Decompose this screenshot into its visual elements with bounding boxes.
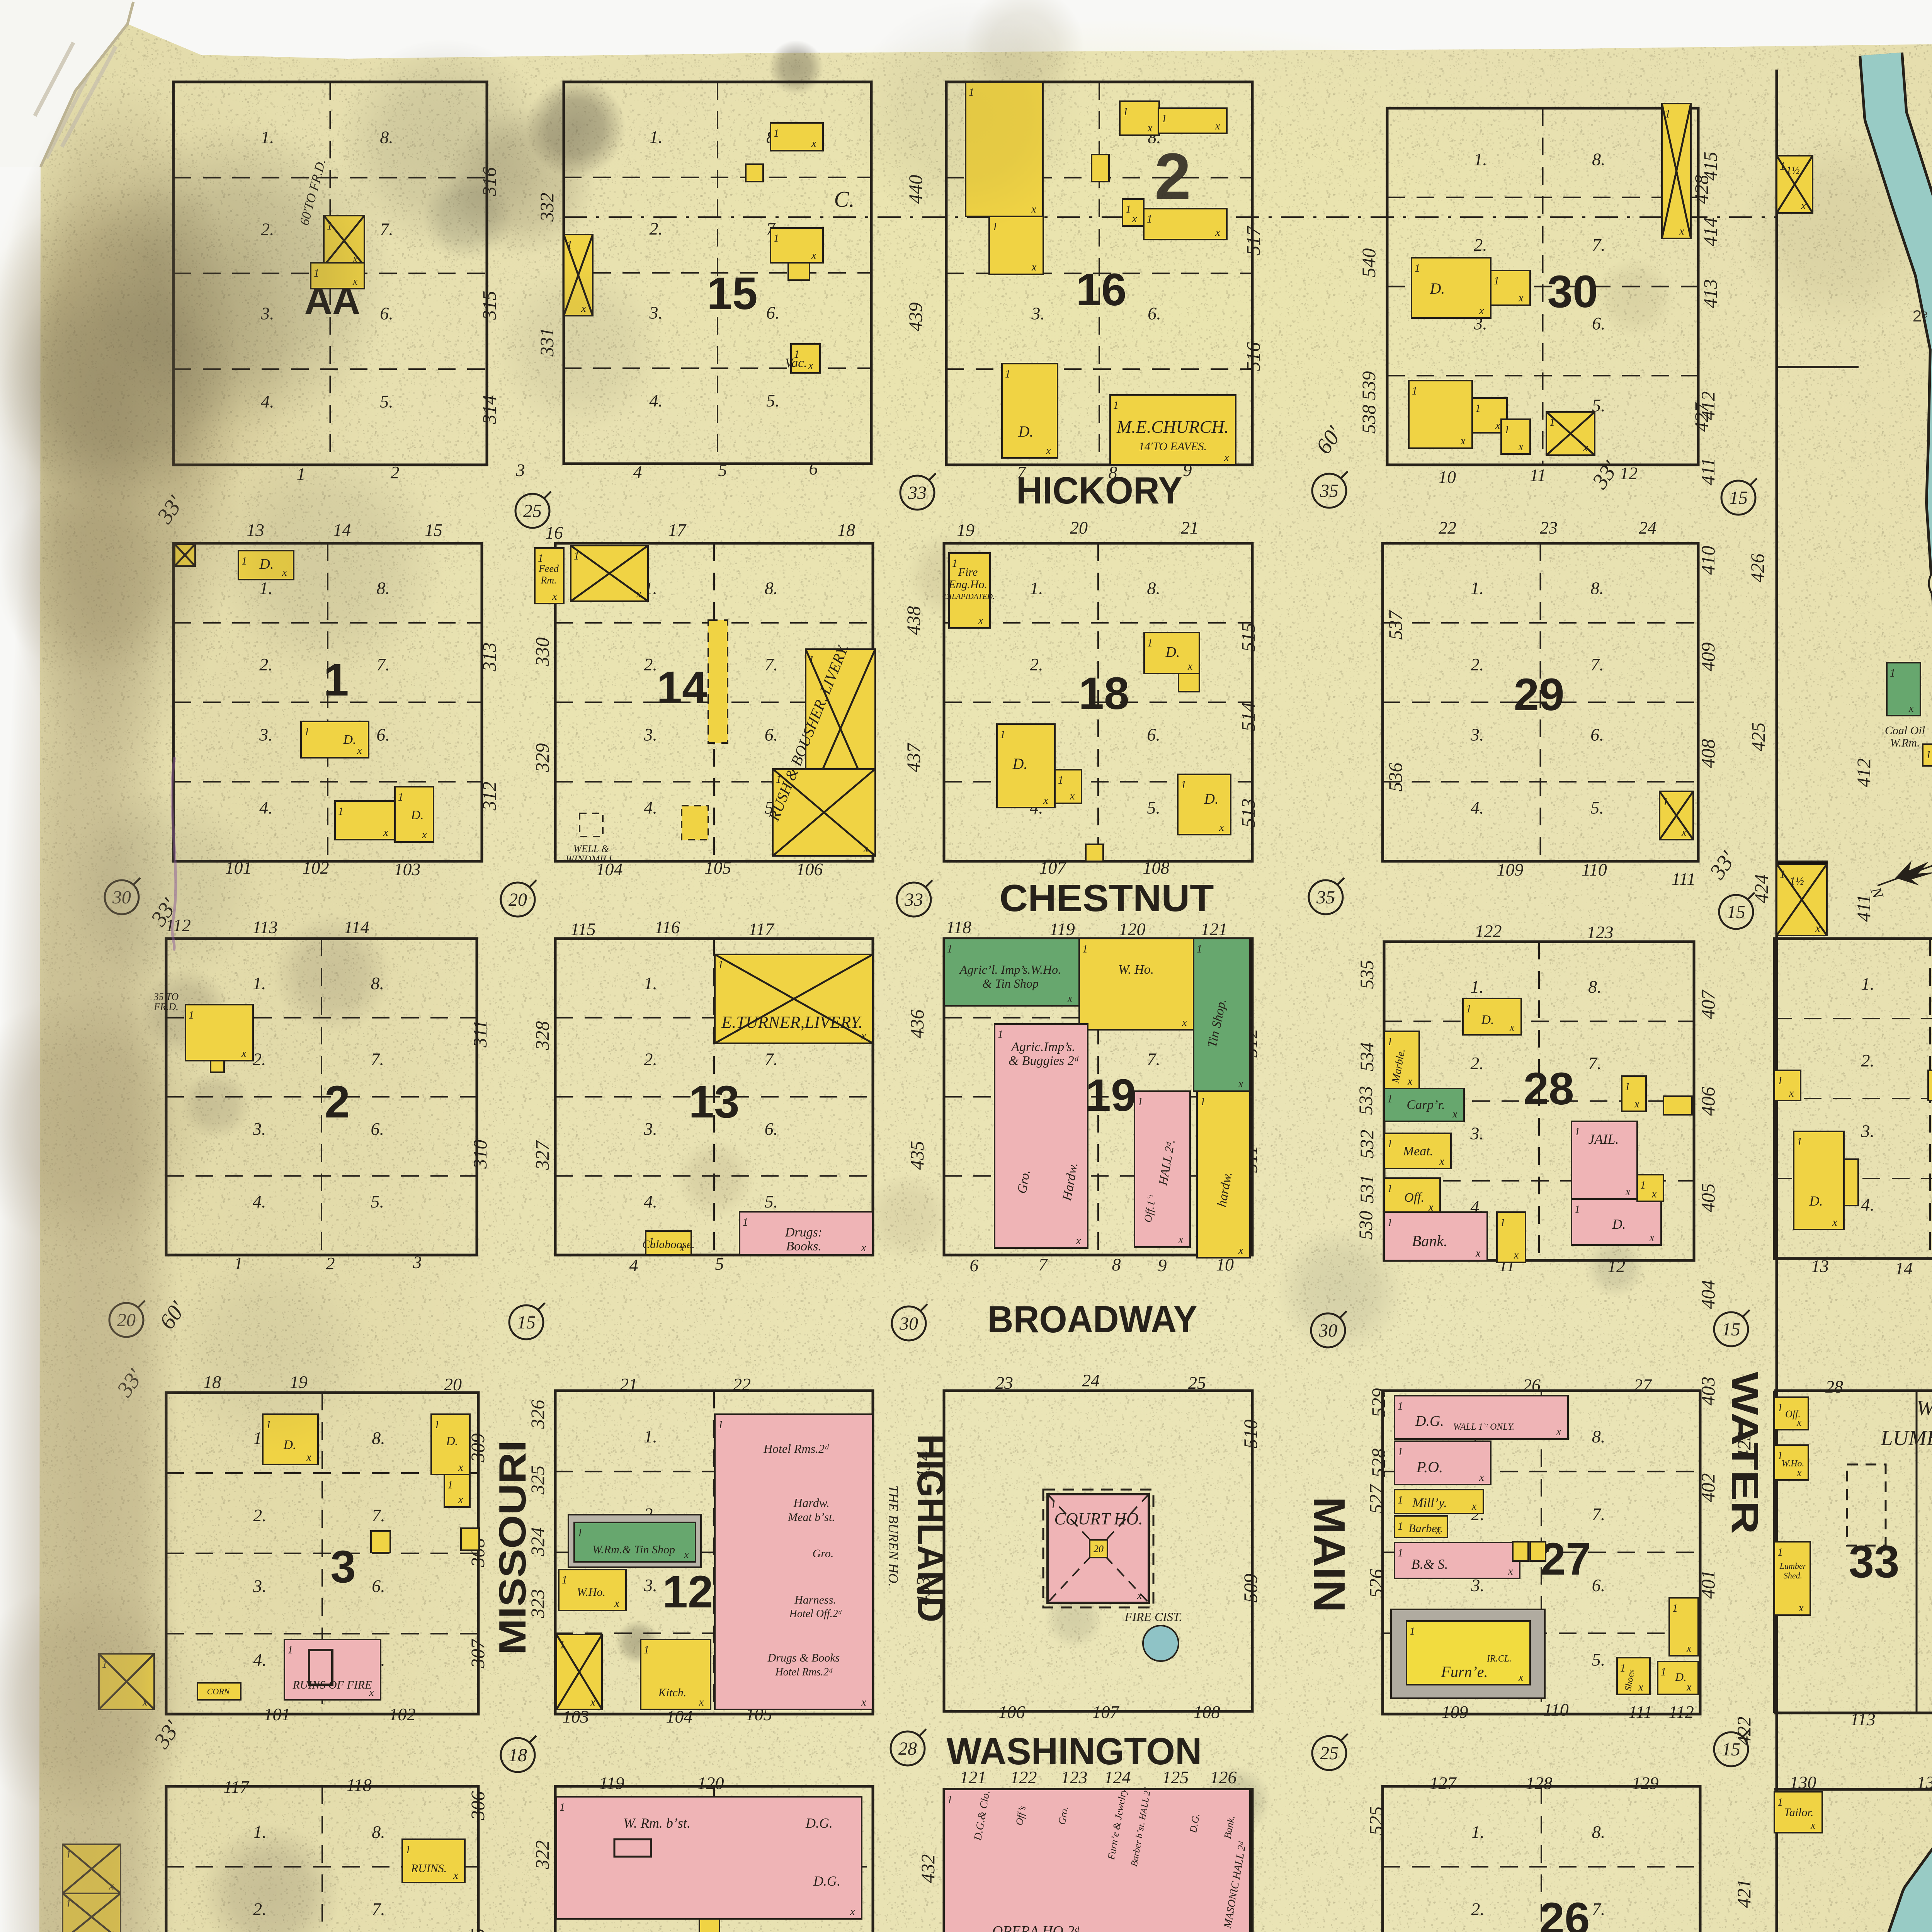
svg-text:Hardw.: Hardw. (793, 1496, 829, 1510)
svg-text:322: 322 (531, 1840, 553, 1870)
svg-text:x: x (1046, 445, 1051, 457)
svg-text:x: x (453, 1869, 458, 1881)
svg-text:x: x (614, 1597, 619, 1609)
svg-text:26: 26 (1539, 1893, 1590, 1932)
svg-text:1: 1 (1005, 368, 1010, 380)
svg-text:Meat bʼst.: Meat bʼst. (787, 1511, 835, 1524)
svg-text:x: x (1634, 1098, 1639, 1110)
svg-text:Harness.: Harness. (794, 1594, 836, 1606)
svg-text:314: 314 (478, 395, 500, 425)
svg-text:117: 117 (223, 1777, 250, 1797)
svg-text:1.: 1. (1861, 974, 1875, 993)
svg-text:x: x (1815, 922, 1820, 934)
svg-text:x: x (357, 745, 362, 757)
svg-text:x: x (1182, 1017, 1187, 1029)
svg-text:20: 20 (1094, 1543, 1104, 1554)
svg-text:102: 102 (303, 858, 329, 878)
svg-text:IR.CL.: IR.CL. (1486, 1654, 1512, 1664)
svg-text:25: 25 (1188, 1373, 1206, 1393)
svg-text:4.: 4. (253, 1650, 267, 1670)
svg-text:1: 1 (1387, 1217, 1393, 1229)
svg-text:CORN: CORN (207, 1687, 230, 1696)
svg-text:2ᵉ COPY DEL TO MAP DIV.: 2ᵉ COPY DEL TO MAP DIV. (1913, 307, 1932, 325)
svg-text:1: 1 (1410, 1626, 1415, 1638)
svg-text:1: 1 (1640, 1179, 1646, 1191)
svg-text:x: x (1031, 261, 1037, 273)
svg-text:33: 33 (904, 889, 923, 910)
svg-text:1: 1 (1162, 113, 1167, 125)
svg-text:3.: 3. (643, 1575, 657, 1595)
svg-text:529: 529 (1367, 1388, 1389, 1417)
svg-text:D.: D. (1204, 791, 1219, 807)
svg-text:422: 422 (1733, 1717, 1755, 1746)
svg-text:12: 12 (1607, 1256, 1625, 1276)
svg-text:7.: 7. (1588, 1053, 1602, 1073)
svg-text:D.: D. (410, 808, 423, 822)
svg-text:28: 28 (898, 1738, 917, 1759)
svg-text:5.: 5. (765, 1192, 778, 1211)
svg-text:x: x (1518, 1672, 1524, 1684)
svg-text:14: 14 (656, 662, 707, 713)
svg-text:1.: 1. (644, 973, 657, 993)
svg-text:3.: 3. (253, 1576, 267, 1596)
svg-text:35: 35 (1316, 887, 1335, 908)
svg-text:12: 12 (662, 1566, 713, 1617)
svg-text:6.: 6. (1147, 724, 1160, 744)
svg-text:102: 102 (389, 1704, 416, 1724)
svg-text:1: 1 (952, 558, 957, 570)
svg-text:D.G.: D.G. (813, 1873, 840, 1889)
svg-text:6.: 6. (766, 303, 780, 323)
svg-text:401: 401 (1697, 1570, 1719, 1599)
svg-text:JAIL.: JAIL. (1588, 1131, 1619, 1147)
svg-text:405: 405 (1697, 1184, 1719, 1213)
svg-text:x: x (458, 1461, 463, 1473)
svg-text:4.: 4. (253, 1192, 266, 1211)
svg-text:126: 126 (1210, 1767, 1237, 1787)
svg-text:106: 106 (796, 859, 823, 879)
svg-text:1: 1 (1661, 1666, 1666, 1678)
svg-text:Drugs & Books: Drugs & Books (767, 1651, 840, 1664)
svg-text:15: 15 (1722, 1319, 1740, 1340)
svg-text:x: x (1518, 292, 1524, 304)
svg-text:D.G.: D.G. (1415, 1413, 1444, 1429)
svg-text:1: 1 (577, 1527, 583, 1539)
svg-text:33: 33 (908, 483, 927, 503)
svg-text:1: 1 (1123, 106, 1128, 118)
svg-text:15: 15 (1727, 902, 1745, 922)
svg-text:D.: D. (1481, 1013, 1494, 1027)
svg-text:x: x (684, 1549, 689, 1561)
svg-text:x: x (850, 1906, 855, 1918)
svg-text:1: 1 (287, 1644, 293, 1656)
svg-text:x: x (1224, 452, 1229, 464)
svg-text:x: x (978, 615, 983, 627)
svg-text:9: 9 (1158, 1255, 1167, 1275)
svg-text:1: 1 (1398, 1520, 1403, 1532)
svg-text:D.: D. (446, 1434, 458, 1448)
svg-text:8.: 8. (1592, 1427, 1605, 1446)
svg-text:3.: 3. (1470, 1124, 1484, 1143)
svg-text:1: 1 (1665, 108, 1670, 120)
svg-text:121: 121 (960, 1767, 986, 1787)
svg-text:6.: 6. (372, 1576, 385, 1596)
svg-text:Vac.: Vac. (785, 356, 807, 370)
svg-text:535: 535 (1356, 960, 1378, 989)
svg-text:123: 123 (1061, 1767, 1088, 1787)
svg-text:1: 1 (1890, 667, 1895, 679)
svg-text:114: 114 (344, 917, 369, 937)
svg-text:Kitch.: Kitch. (658, 1686, 687, 1699)
svg-text:7: 7 (1017, 463, 1027, 482)
svg-text:1: 1 (947, 943, 952, 955)
svg-text:23: 23 (1540, 518, 1558, 537)
svg-text:3.: 3. (252, 1119, 266, 1139)
svg-text:7.: 7. (1592, 235, 1605, 255)
svg-text:514: 514 (1237, 702, 1259, 731)
svg-text:411: 411 (1697, 457, 1719, 485)
svg-text:13: 13 (689, 1077, 739, 1128)
svg-text:20: 20 (444, 1374, 462, 1394)
svg-text:B.& S.: B.& S. (1412, 1556, 1448, 1572)
svg-text:Mill’y.: Mill’y. (1412, 1496, 1447, 1510)
svg-text:1: 1 (1777, 1402, 1783, 1414)
svg-text:20: 20 (1070, 518, 1088, 537)
svg-text:18: 18 (837, 520, 855, 540)
svg-text:8.: 8. (371, 973, 384, 993)
svg-text:423: 423 (1733, 1431, 1755, 1460)
svg-text:2.: 2. (650, 219, 663, 238)
svg-text:1: 1 (644, 1644, 649, 1656)
svg-text:7.: 7. (1592, 1899, 1605, 1919)
svg-text:533: 533 (1355, 1086, 1376, 1115)
svg-text:3.: 3. (1470, 724, 1484, 744)
svg-text:404: 404 (1697, 1280, 1719, 1309)
svg-text:1½: 1½ (1786, 165, 1800, 177)
svg-text:26: 26 (1523, 1375, 1541, 1395)
svg-text:537: 537 (1384, 610, 1406, 640)
svg-text:407: 407 (1697, 990, 1719, 1019)
svg-text:111: 111 (1628, 1702, 1652, 1722)
svg-text:1.: 1. (650, 127, 663, 147)
svg-text:HICKORY: HICKORY (1016, 469, 1182, 512)
svg-text:x: x (1832, 1216, 1837, 1228)
svg-text:434: 434 (912, 1451, 934, 1480)
svg-text:307: 307 (467, 1639, 488, 1669)
svg-text:x: x (1686, 1643, 1692, 1655)
svg-text:W. Ho.: W. Ho. (1118, 963, 1154, 977)
svg-text:W.Rm.: W.Rm. (1890, 736, 1920, 749)
svg-text:306: 306 (467, 1791, 488, 1821)
svg-text:D.: D. (1430, 280, 1445, 297)
svg-text:130: 130 (1790, 1772, 1816, 1792)
svg-text:20: 20 (509, 889, 527, 910)
svg-text:13: 13 (1811, 1256, 1829, 1276)
svg-text:7.: 7. (1592, 1504, 1605, 1524)
svg-text:1.: 1. (253, 973, 266, 993)
svg-text:FIRE CIST.: FIRE CIST. (1124, 1610, 1182, 1624)
svg-text:24: 24 (1082, 1371, 1100, 1390)
svg-text:6.: 6. (1148, 303, 1161, 323)
svg-text:x: x (306, 1451, 311, 1463)
svg-text:5: 5 (715, 1254, 724, 1274)
svg-text:Barber.: Barber. (1408, 1522, 1443, 1535)
svg-text:6.: 6. (371, 1119, 384, 1139)
svg-text:6.: 6. (1592, 1575, 1605, 1595)
svg-text:7.: 7. (765, 655, 778, 674)
svg-text:536: 536 (1384, 763, 1406, 792)
svg-text:7.: 7. (1590, 655, 1604, 674)
svg-text:11: 11 (1530, 465, 1546, 485)
svg-text:8.: 8. (765, 578, 778, 598)
svg-text:1: 1 (447, 1479, 453, 1491)
svg-text:1: 1 (774, 233, 779, 245)
svg-text:1: 1 (1475, 403, 1481, 415)
svg-text:D.: D. (1612, 1216, 1626, 1232)
svg-text:W. F. SHAW,: W. F. SHAW, (1917, 1396, 1932, 1420)
svg-text:1: 1 (1926, 749, 1931, 761)
svg-text:315: 315 (478, 291, 500, 320)
svg-text:x: x (1509, 1022, 1515, 1034)
svg-text:D.: D. (343, 733, 356, 747)
svg-text:1: 1 (1549, 417, 1555, 429)
svg-text:2.: 2. (253, 1899, 267, 1919)
svg-text:119: 119 (1049, 919, 1075, 939)
svg-text:4.: 4. (1861, 1195, 1875, 1214)
svg-text:1.: 1. (1471, 578, 1484, 598)
svg-text:125: 125 (1162, 1767, 1189, 1787)
svg-text:7: 7 (1039, 1255, 1048, 1274)
svg-text:510: 510 (1240, 1420, 1261, 1449)
svg-text:W. Rm. bʼst.: W. Rm. bʼst. (623, 1815, 690, 1831)
svg-text:x: x (383, 827, 388, 838)
svg-text:4.: 4. (650, 391, 663, 410)
svg-text:1: 1 (1500, 1217, 1505, 1229)
svg-text:28: 28 (1523, 1063, 1574, 1114)
svg-text:7.: 7. (371, 1049, 384, 1069)
svg-text:15: 15 (517, 1312, 536, 1333)
svg-text:532: 532 (1356, 1130, 1378, 1159)
svg-text:23: 23 (995, 1373, 1013, 1393)
svg-text:1: 1 (1412, 385, 1417, 397)
svg-text:421: 421 (1733, 1879, 1755, 1908)
svg-text:Calaboose.: Calaboose. (642, 1238, 695, 1251)
svg-text:120: 120 (1119, 919, 1146, 939)
svg-text:108: 108 (1143, 858, 1170, 878)
svg-text:Drugs:: Drugs: (785, 1225, 822, 1240)
svg-text:Carp’r.: Carp’r. (1406, 1098, 1445, 1112)
svg-text:425: 425 (1747, 723, 1769, 752)
svg-text:7.: 7. (372, 1899, 385, 1919)
svg-text:128: 128 (1526, 1773, 1553, 1793)
svg-text:107: 107 (1092, 1702, 1120, 1722)
svg-text:x: x (1439, 1155, 1444, 1167)
svg-text:x: x (1495, 420, 1500, 432)
svg-text:3.: 3. (259, 724, 273, 744)
svg-text:2.: 2. (1861, 1051, 1875, 1070)
svg-text:THE BUREN HO.: THE BUREN HO. (886, 1485, 901, 1587)
svg-text:14: 14 (1895, 1259, 1913, 1278)
svg-text:330: 330 (531, 638, 553, 667)
svg-text:1: 1 (1777, 1075, 1783, 1087)
svg-text:531: 531 (1356, 1175, 1378, 1204)
svg-text:x: x (241, 1048, 247, 1060)
svg-text:Furn’e.: Furn’e. (1440, 1663, 1488, 1680)
svg-text:Bank.: Bank. (1412, 1232, 1447, 1250)
svg-text:1: 1 (1466, 1003, 1471, 1015)
svg-text:540: 540 (1358, 248, 1379, 277)
svg-text:2.: 2. (1471, 1899, 1485, 1919)
svg-text:1: 1 (1398, 1400, 1403, 1412)
svg-text:x: x (1649, 1232, 1655, 1244)
svg-text:129: 129 (1632, 1773, 1659, 1793)
svg-text:21: 21 (620, 1374, 638, 1394)
svg-text:1: 1 (1387, 1138, 1393, 1150)
svg-text:1: 1 (560, 1801, 565, 1813)
svg-text:1: 1 (1398, 1446, 1403, 1458)
svg-text:324: 324 (527, 1527, 548, 1557)
svg-text:526: 526 (1365, 1569, 1387, 1598)
svg-text:x: x (1679, 225, 1684, 237)
svg-text:1.: 1. (253, 1822, 267, 1842)
svg-text:D.: D. (1165, 644, 1180, 660)
svg-text:x: x (1452, 1108, 1458, 1120)
svg-text:Meat.: Meat. (1403, 1144, 1433, 1158)
svg-text:119: 119 (599, 1773, 624, 1793)
svg-text:311: 311 (469, 1020, 491, 1048)
svg-text:D.: D. (1012, 755, 1028, 772)
svg-text:1: 1 (774, 128, 779, 139)
svg-text:513: 513 (1237, 799, 1259, 828)
svg-text:25: 25 (523, 501, 542, 521)
svg-text:409: 409 (1697, 643, 1719, 672)
svg-text:408: 408 (1697, 739, 1719, 768)
svg-text:5.: 5. (1592, 1650, 1605, 1669)
svg-text:Off.: Off. (1404, 1190, 1424, 1205)
svg-text:x: x (1407, 1075, 1413, 1087)
svg-text:127: 127 (1430, 1773, 1457, 1793)
svg-text:D.G.: D.G. (805, 1815, 833, 1831)
svg-text:539: 539 (1358, 371, 1379, 400)
svg-text:8.: 8. (1147, 578, 1160, 598)
svg-text:x: x (811, 138, 816, 150)
svg-text:109: 109 (1442, 1702, 1468, 1722)
svg-text:5: 5 (718, 460, 727, 480)
svg-text:x: x (636, 588, 641, 600)
svg-text:x: x (1043, 794, 1048, 806)
svg-text:Feed: Feed (538, 563, 559, 574)
svg-text:7.: 7. (765, 1049, 778, 1069)
svg-text:107: 107 (1039, 858, 1067, 878)
svg-text:x: x (863, 843, 869, 855)
svg-text:x: x (1479, 1471, 1484, 1483)
svg-text:2.: 2. (253, 1505, 267, 1525)
svg-text:1: 1 (1000, 729, 1005, 741)
svg-text:433: 433 (912, 1577, 934, 1605)
svg-text:323: 323 (527, 1589, 548, 1619)
svg-text:x: x (1238, 1245, 1243, 1257)
svg-text:413: 413 (1699, 279, 1721, 308)
svg-text:1: 1 (1387, 1183, 1393, 1195)
svg-text:329: 329 (531, 743, 553, 773)
svg-text:Lumber: Lumber (1779, 1561, 1806, 1571)
svg-text:1: 1 (574, 550, 579, 562)
svg-text:1½: 1½ (1789, 875, 1804, 888)
svg-text:x: x (1518, 441, 1524, 453)
svg-text:x: x (1475, 1247, 1481, 1259)
svg-text:& Tin Shop: & Tin Shop (982, 976, 1039, 990)
svg-text:8.: 8. (1592, 150, 1605, 169)
svg-text:8.: 8. (372, 1822, 385, 1842)
svg-text:x: x (1798, 1602, 1804, 1614)
svg-text:x: x (699, 1696, 704, 1708)
svg-text:4.: 4. (1471, 798, 1484, 818)
svg-text:538: 538 (1358, 405, 1379, 434)
svg-text:x: x (1514, 1249, 1519, 1261)
svg-text:1.: 1. (1030, 578, 1043, 598)
svg-text:120: 120 (697, 1773, 724, 1793)
svg-text:Agric.Imp’s.: Agric.Imp’s. (1010, 1040, 1075, 1054)
svg-text:412: 412 (1853, 759, 1874, 787)
svg-text:3: 3 (413, 1252, 422, 1272)
svg-text:x: x (1638, 1681, 1643, 1693)
svg-text:24: 24 (1639, 518, 1656, 537)
svg-text:x: x (811, 250, 816, 262)
svg-text:2.: 2. (1471, 655, 1484, 674)
svg-text:x: x (1178, 1234, 1184, 1246)
svg-text:2.: 2. (1474, 235, 1487, 255)
svg-text:110: 110 (1543, 1700, 1569, 1719)
svg-text:LUMBER YARD.: LUMBER YARD. (1881, 1426, 1932, 1450)
svg-text:1: 1 (567, 239, 572, 251)
svg-text:1: 1 (718, 959, 723, 971)
svg-text:2.: 2. (1030, 655, 1043, 674)
svg-text:D.: D. (1018, 423, 1034, 440)
svg-text:1: 1 (1387, 1093, 1393, 1105)
svg-text:1: 1 (998, 1029, 1003, 1041)
svg-text:1: 1 (1415, 262, 1420, 274)
svg-text:105: 105 (705, 858, 731, 878)
svg-text:2: 2 (1155, 140, 1191, 213)
svg-text:113: 113 (1850, 1709, 1876, 1729)
svg-text:x: x (422, 829, 427, 841)
svg-text:516: 516 (1242, 342, 1264, 371)
svg-text:1: 1 (1147, 213, 1152, 225)
svg-text:118: 118 (946, 917, 971, 937)
svg-text:x: x (1460, 435, 1466, 447)
svg-text:22: 22 (1439, 518, 1456, 537)
svg-text:8.: 8. (1592, 1822, 1605, 1842)
svg-text:122: 122 (1010, 1767, 1037, 1787)
svg-text:WASHINGTON: WASHINGTON (947, 1730, 1202, 1772)
svg-text:432: 432 (917, 1854, 939, 1883)
svg-text:1: 1 (1797, 1136, 1802, 1148)
svg-text:1: 1 (560, 1639, 565, 1651)
svg-text:P.O.: P.O. (1416, 1458, 1443, 1476)
svg-text:1.: 1. (1471, 1822, 1485, 1842)
svg-text:7.: 7. (372, 1505, 385, 1525)
svg-text:1: 1 (1777, 1546, 1783, 1558)
svg-text:CHESTNUT: CHESTNUT (1000, 877, 1214, 919)
svg-text:RUINS.: RUINS. (411, 1862, 447, 1875)
svg-text:528: 528 (1367, 1449, 1389, 1478)
svg-text:x: x (1067, 993, 1073, 1005)
svg-text:33: 33 (1849, 1536, 1899, 1587)
svg-text:27: 27 (1634, 1375, 1652, 1395)
svg-text:DILAPIDATED.: DILAPIDATED. (943, 592, 995, 601)
svg-text:410: 410 (1697, 546, 1719, 575)
svg-text:x: x (1810, 1820, 1816, 1832)
